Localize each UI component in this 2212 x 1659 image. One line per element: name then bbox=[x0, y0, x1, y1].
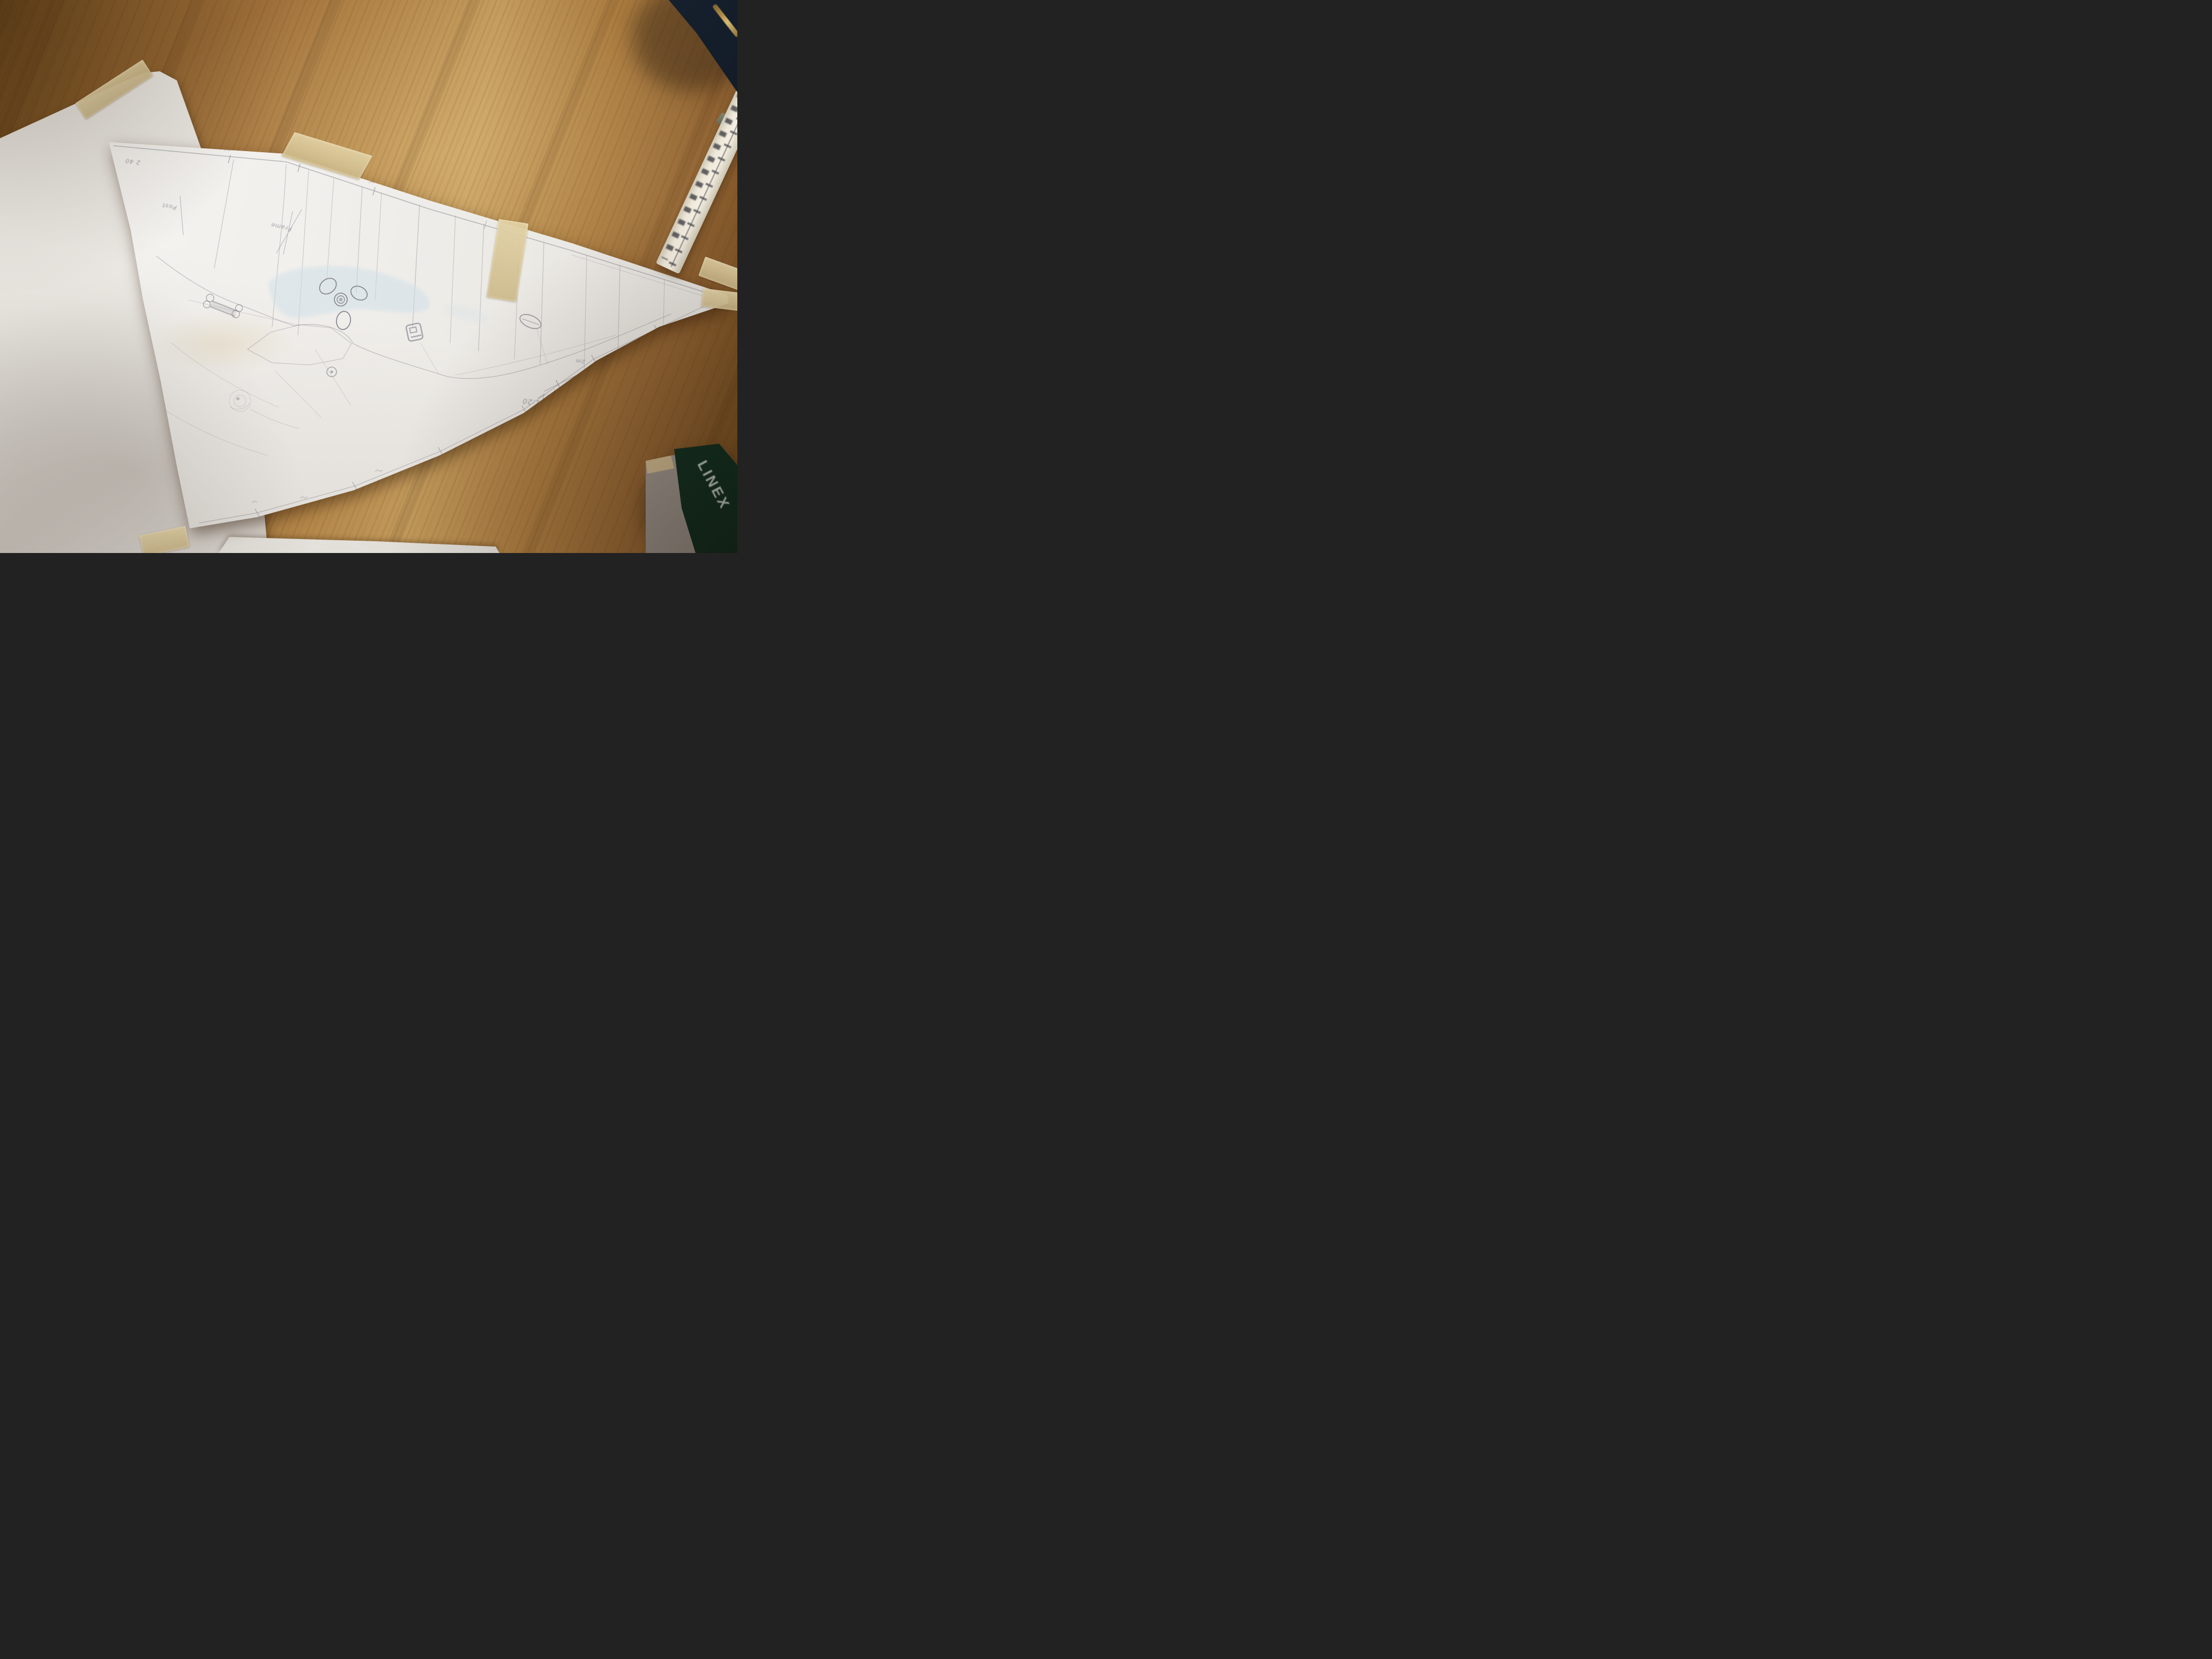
frame-label-text: Frame bbox=[270, 221, 293, 233]
scale-length-text: 2m bbox=[575, 357, 585, 364]
wheel-scribble-sketch bbox=[229, 390, 299, 429]
bone-sketch bbox=[204, 294, 243, 318]
misc-faint-lines bbox=[161, 300, 616, 455]
pencil-sketch-svg: 2 40 Post Frame 1:20 2m bbox=[0, 0, 737, 553]
apex-note-text: 2 40 bbox=[124, 157, 140, 166]
frame-lines bbox=[214, 160, 664, 382]
scale-bar bbox=[538, 363, 604, 401]
bottom-edge-line bbox=[199, 300, 717, 523]
section-top-line-double bbox=[572, 255, 716, 300]
scale-ratio-text: 1:20 bbox=[522, 396, 541, 406]
photo-scene: 2 40 Post Frame 1:20 2m LINEX bbox=[0, 0, 737, 553]
post-label-text: Post bbox=[161, 201, 177, 211]
blue-wash bbox=[268, 266, 430, 318]
buckle-sketch bbox=[406, 323, 423, 341]
lens-outline bbox=[248, 325, 352, 365]
oval-find-sketch bbox=[518, 311, 543, 331]
blue-wash-streak bbox=[443, 301, 490, 327]
